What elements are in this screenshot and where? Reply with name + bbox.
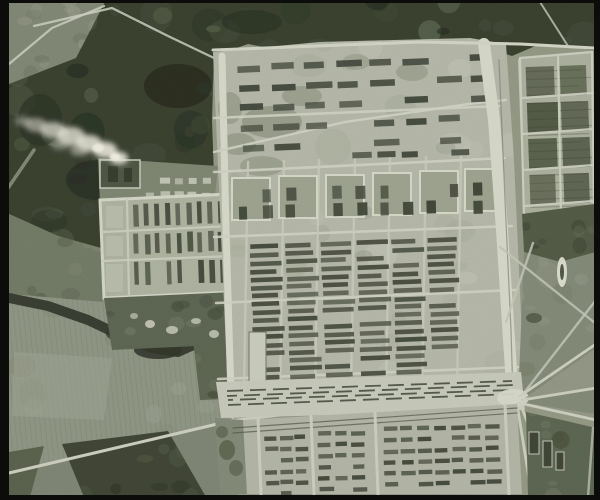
photo-tint-overlay — [0, 0, 600, 500]
aerial-photo — [0, 0, 600, 500]
photo-canvas — [0, 0, 600, 500]
